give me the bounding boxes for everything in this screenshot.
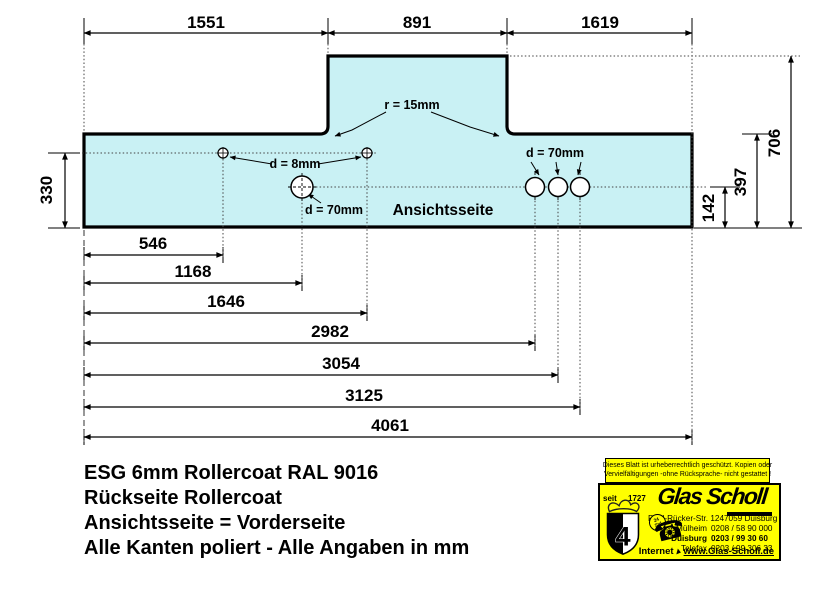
dim-bottom-1646: 1646 [207,292,245,311]
title-line-material: ESG 6mm Rollercoat RAL 9016 [84,461,469,486]
title-line-backside: Rückseite Rollercoat [84,486,469,511]
company-stamp: seit 1727 4 Glas Scholl Paul-Rücker-Str.… [598,483,781,561]
dim-bottom-3054: 3054 [322,354,360,373]
technical-drawing: 1551 891 1619 330 142 397 706 546 1168 1… [0,0,838,460]
website-url: www.Glas-Scholl.de [684,546,774,557]
dim-right-706: 706 [765,129,784,157]
face-side-label: Ansichtsseite [393,202,494,219]
title-line-viewside: Ansichtsseite = Vorderseite [84,511,469,536]
dim-top-1551: 1551 [187,13,225,32]
phone-row-muelheim: Mülheim 0208 / 58 90 000 [648,524,777,534]
title-line-edges: Alle Kanten poliert - Alle Angaben in mm [84,536,469,561]
dim-top-891: 891 [403,13,431,32]
copyright-line-1: Dieses Blatt ist urheberrechtlich geschü… [603,462,772,471]
title-block: ESG 6mm Rollercoat RAL 9016 Rückseite Ro… [84,461,469,561]
note-d70mm-right: d = 70mm [526,146,584,160]
note-d70mm-left: d = 70mm [305,203,363,217]
dim-bottom-2982: 2982 [311,322,349,341]
drawing-sheet: 1551 891 1619 330 142 397 706 546 1168 1… [0,0,838,590]
note-d8mm: d = 8mm [269,157,320,171]
dim-right-397: 397 [731,168,750,196]
internet-label: Internet [639,546,674,557]
internet-line: Internet www.Glas-Scholl.de [639,546,774,557]
copyright-line-2: Vervielfältigungen -ohne Rücksprache- ni… [604,471,771,480]
dim-top-1619: 1619 [581,13,619,32]
note-radius: r = 15mm [384,98,439,112]
hole-70mm-right-3 [571,178,590,197]
dim-right-142: 142 [699,194,718,222]
hole-70mm-right-2 [549,178,568,197]
glass-panel-outline [84,56,692,227]
dim-left-330: 330 [37,176,56,204]
crest-number: 4 [615,520,630,551]
copyright-notice: Dieses Blatt ist urheberrechtlich geschü… [605,458,770,483]
dim-bottom-1168: 1168 [175,262,212,281]
mouse-cursor-icon [676,548,681,555]
city: 47059 Duisburg [719,514,777,523]
dim-bottom-3125: 3125 [345,386,383,405]
company-name: Glas Scholl [645,483,780,510]
hole-70mm-right-1 [526,178,545,197]
dim-bottom-4061: 4061 [371,416,409,435]
phone-row-duisburg: Duisburg 0203 / 99 30 60 [648,534,777,544]
dim-bottom-546: 546 [139,234,167,253]
